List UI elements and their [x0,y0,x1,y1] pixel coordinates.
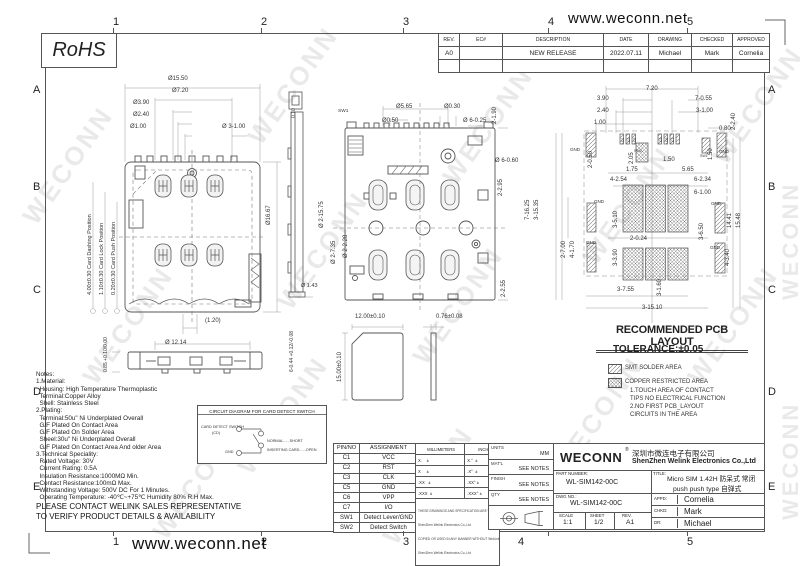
grid-row-d: D [768,386,776,398]
disclaimer-line: COPIED OR USED IN ANY MANNER WITHOUT Wei… [418,537,499,541]
frame-tick [548,28,549,33]
copper-restricted-swatch-icon [608,378,622,388]
cell [649,60,692,73]
cell: RST [360,463,418,473]
grid-row-c: C [33,284,41,296]
table-row: C7I/O [334,503,418,513]
dim-label: Ø0.50 [382,118,398,124]
finish-label: FINISH [491,476,505,481]
pcb-tolerance: TOLERANCE:±0.05 [613,344,703,355]
dr-value: Michael [677,519,712,528]
cell: VCC [360,453,418,463]
sim-card-view [338,320,458,405]
cell: C7 [334,503,360,513]
dim-label: 1.00 [594,120,606,126]
cell: C3 [334,473,360,483]
grid-row-e: E [768,481,775,493]
dwg-no-value: WL-SIM142-00C [570,500,622,507]
title-block: WECONN ® 深圳市微连电子有限公司 ShenZhen Welink Ele… [553,443,765,530]
qty-value: SEE NOTES [519,497,549,503]
dim-label: Ø5.65 [396,104,412,110]
sheet-cell: SHEET 1/2 [585,512,615,529]
scale-label: SCALE [559,513,573,518]
dim-label: Ø 2-2.28 [343,235,349,258]
smt-solder-swatch-icon [608,364,622,374]
cell: DATE [604,34,649,47]
dim-label: Ø2.40 [133,112,149,118]
frame-tick [687,28,688,33]
cell [439,60,460,73]
dim-label: Ø 6-0.25 [463,118,486,124]
note-line: Terminal:Copper Alloy [36,393,241,400]
cell: Mark [692,47,733,60]
dim-label: Ø1.00 [130,124,146,130]
dim-label: 2.05 [629,152,635,164]
qty-label: QTY [491,492,500,497]
cell: PIN/NO [334,444,360,454]
circuit-normal-label: NORMAL......SHORT [267,440,303,444]
dim-label: 0.10 [292,108,297,118]
info-column: UNITS MM MAT'L SEE NOTES FINISH SEE NOTE… [488,443,555,530]
circuit-gnd-label: GND [225,451,233,455]
dim-label: 0.20±0.30 Card Push Position [112,222,118,295]
cell: 2022.07.11 [604,47,649,60]
chkd-label: CHKD: [654,508,667,513]
rohs-label: RoHS [52,39,105,62]
dim-label: 7.20 [646,86,658,92]
appd-value: Cornelia [677,495,714,504]
card-detect-circuit: CIRCUIT DIAGRAM FOR CARD DETECT SWITCH C… [197,405,327,464]
label-gnd: GND [711,202,721,207]
table-row: C6VPP [334,493,418,503]
label-gnd: GND [570,148,580,153]
dim-label: 1.75 [626,167,638,173]
cell: APPROVED [733,34,770,47]
dr-row: DR: Michael [651,517,764,529]
note-line: Housing: High Temperature Thermoplastic [36,386,241,393]
dim-label: 3-15.35 [534,200,540,220]
dim-label: 3-5.10 [613,211,619,228]
label-gnd: GND [710,246,720,251]
part-number-cell: PART NUMBER: WL-SIM142-00C [554,470,652,494]
grid-col-5: 5 [687,536,693,548]
cell: .XXX ± [416,488,465,499]
disclaimer-line: ShenZhen Welink Electronics Co.,Ltd [418,551,499,555]
dim-label: 2-0.24 [630,236,647,242]
cell: GND [360,483,418,493]
pad-label: C5 [660,138,663,142]
copper-note: 2.NO FIRST PCB_LAYOUT [630,404,704,410]
dim-label: 12.00±0.10 [355,314,385,320]
cell [460,47,503,60]
part-number-value: WL-SIM142-00C [566,479,618,486]
grid-row-b: B [33,181,40,193]
dim-label: 4-3.40 [725,249,731,266]
dim-label: 0.85 +0.10/0.00 [104,337,109,372]
appd-label: APPD: [654,496,667,501]
title-line1: Micro SIM 1.42H 防呆式 常闭 [667,473,755,483]
matl-value: SEE NOTES [519,466,549,472]
finish-value: SEE NOTES [519,482,549,488]
title-label: TITLE: [653,471,666,476]
note-line: Operating Temperature: -40℃~+75℃ Humidit… [36,494,241,501]
pin-assignment-table: PIN/NO ASSIGNMENT C1VCC C2RST C3CLK C5GN… [333,443,418,533]
dim-label: 3-1.60 [657,279,663,296]
grid-col-4: 4 [518,536,524,548]
drawing-sheet: { "header": { "url": "www.weconn.net" },… [0,0,800,565]
cell: X. ± [416,455,465,466]
circuit-cd-label: (CD) [212,432,220,436]
label-sw1: SW1 [700,155,708,159]
dim-label: 0.80 [719,126,731,132]
copper-note: CIRCUITS IN THE AREA [630,412,697,418]
dim-label: Ø 2-7.35 [331,241,337,264]
table-row: C1VCC [334,453,418,463]
cell: Detect Lever/GND [360,513,418,523]
table-row: PIN/NO ASSIGNMENT [334,444,418,454]
frame-tick [687,531,688,536]
dim-label: 3-1.00 [696,108,713,114]
smt-solder-label: SMT SOLDER AREA [625,365,682,371]
cell: SW2 [334,523,360,533]
cell [733,60,770,73]
dim-label: 6-2.34 [694,177,711,183]
dim-label: 3-3.90 [613,249,619,266]
cell: ASSIGNMENT [360,444,418,454]
rev-label: REV. [622,513,632,518]
grid-col-1: 1 [113,536,119,548]
note-line: Contact Resistance:100mΩ Max. [36,480,241,487]
chkd-value: Mark [677,507,702,516]
connector-bottom-view [328,98,513,313]
cell: CLK [360,473,418,483]
connector-edge-view [283,90,317,310]
cell: EC# [460,34,503,47]
footer-url: www.weconn.net [132,534,267,554]
brand-logo: WECONN [560,450,622,465]
grid-col-3: 3 [403,536,409,548]
copper-note: 1.TOUCH AREA OF CONTACT [630,388,714,394]
label-gnd: GND [719,150,729,155]
circuit-inserting-label: INSERTING CARD......OPEN [267,449,317,453]
cell [460,60,503,73]
dim-label: 2-2.95 [498,179,504,196]
contact-notice: TO VERIFY PRODUCT DETAILS & AVAILABILITY [36,512,241,522]
part-number-label: PART NUMBER: [556,471,588,476]
cell: C6 [334,493,360,503]
dim-label: Ø0.30 [444,104,460,110]
sheet-value: 1/2 [594,519,603,526]
dim-label: 2-2.55 [501,280,507,297]
frame-tick [261,531,262,536]
grid-col-2: 2 [261,16,267,28]
pad-label: C7 [672,138,675,142]
dim-label: Ø 1.43 [301,284,318,290]
dim-label: 3-7.55 [617,287,634,293]
dim-label: 4.00±0.30 Card Dashing Position [88,214,94,295]
dim-label: 2-1.90 [492,107,498,124]
dim-label: Ø 3-1.00 [222,124,245,130]
frame-tick [113,531,114,536]
dim-label: Ø3.90 [133,100,149,106]
note-line: 1.Material: [36,378,241,385]
table-row [439,60,770,73]
cell: Cornelia [733,47,770,60]
cell [604,60,649,73]
frame-tick [403,531,404,536]
dim-label: (1.20) [205,318,221,324]
third-angle-projection-icon [499,510,545,527]
frame-tick [261,28,262,33]
title-line2: push push type 自弹式 [673,483,741,493]
pad-label: C6 [666,138,669,142]
cell: Detect Switch [360,523,418,533]
frame-tick [548,531,549,536]
dim-label: 14.41 [727,213,733,228]
dwg-no-cell: DWG NO.: WL-SIM142-00C [554,493,652,513]
label-sw2: SW2 [634,150,642,154]
cell: C2 [334,463,360,473]
note-line: Withstanding Voltage: 500V DC For 1 Minu… [36,487,241,494]
company-name-en: ShenZhen Welink Electronics Co.,Ltd [632,458,756,465]
label-gnd: GND [594,200,604,205]
grid-col-3: 3 [403,16,409,28]
contact-notice: PLEASE CONTACT WELINK SALES REPRESENTATI… [36,502,241,512]
rev-cell: REV. A1 [614,512,651,529]
table-row: C2RST [334,463,418,473]
dim-label: 1.50 [708,148,714,160]
cell [503,60,604,73]
dim-label: 3-15.10 [642,305,662,311]
matl-cell: MAT'L SEE NOTES [489,460,554,476]
scale-row: SCALE 1:1 SHEET 1/2 REV. A1 [554,512,652,529]
units-value: MM [540,451,549,457]
label-sw1: SW1 [338,110,348,115]
dim-label: 2-2.40 [731,113,737,130]
matl-label: MAT'L [491,461,503,466]
drawing-title-cell: TITLE: Micro SIM 1.42H 防呆式 常闭 push push … [651,470,764,494]
note-line: Insulation Resistance:1000MΩ Min. [36,473,241,480]
dim-label: 2-0.50 [588,151,594,168]
dim-label: Ø 6-0.60 [495,158,518,164]
projection-cell [489,506,554,531]
cell: DRAWING [649,34,692,47]
sheet-label: SHEET [590,513,604,518]
grid-col-4: 4 [548,16,554,28]
frame-tick [403,28,404,33]
copper-note: TIPS NO ELECTRICAL FUNCTION [630,396,725,402]
cell: SW1 [334,513,360,523]
cell: C5 [334,483,360,493]
cell: MILLIMETERS [416,444,465,455]
revision-table: REV. EC# DESCRIPTION DATE DRAWING CHECKE… [438,33,770,73]
header-url: www.weconn.net [568,10,688,27]
finish-cell: FINISH SEE NOTES [489,475,554,491]
cell: DESCRIPTION [503,34,604,47]
dim-label: 4-2.54 [610,177,627,183]
dr-label: DR: [654,520,661,525]
frame-tick [113,28,114,33]
dim-label: Ø 12.14 [165,340,186,346]
grid-row-a: A [33,84,40,96]
cell: Michael [649,47,692,60]
pad-label: C3 [634,138,637,142]
cell: REV. [439,34,460,47]
dwg-no-label: DWG NO.: [556,494,577,499]
dim-label: 3-6.50 [699,223,705,240]
dim-label: Ø7.20 [172,88,188,94]
cell: CHECKED [692,34,733,47]
pad-label: C2 [628,138,631,142]
dim-label: 1.50 [663,157,675,163]
dim-label: 0.76±0.08 [436,314,463,320]
cell: .XX ± [416,477,465,488]
dim-label: 5.65 [682,167,694,173]
registered-mark-icon: ® [625,447,629,453]
pad-label: C1 [622,138,625,142]
table-row: REV. EC# DESCRIPTION DATE DRAWING CHECKE… [439,34,770,47]
cell: VPP [360,493,418,503]
dim-label: 3.90 [597,96,609,102]
note-line: Current Rating: 0.5A [36,465,241,472]
cell: C1 [334,453,360,463]
dim-label: 6-0.44 +0.12/-0.08 [290,331,295,372]
table-row: A0 NEW RELEASE 2022.07.11 Michael Mark C… [439,47,770,60]
scale-cell: SCALE 1:1 [554,512,586,529]
dim-label: 1.10±0.30 Card Lock Position [100,223,106,295]
dim-label: 2.40 [597,108,609,114]
brand-row: WECONN ® 深圳市微连电子有限公司 ShenZhen Welink Ele… [554,444,764,471]
units-cell: UNITS MM [489,444,554,460]
dim-label: 6-1.00 [694,190,711,196]
cell: X ± [416,466,465,477]
table-row: C5GND [334,483,418,493]
cell: A0 [439,47,460,60]
rohs-badge: RoHS [41,33,117,68]
units-label: UNITS [491,445,504,450]
cell [692,60,733,73]
grid-col-1: 1 [113,16,119,28]
dim-label: 4-1.70 [570,241,576,258]
cell: NEW RELEASE [503,47,604,60]
dim-label: Ø15.50 [168,76,188,82]
cell: I/O [360,503,418,513]
dim-label: 15.00±0.10 [337,352,343,382]
dim-label: 2-7.00 [561,241,567,258]
dim-label: Ø 2-15.75 [319,201,325,228]
dim-label: 7-0.55 [695,96,712,102]
dim-label: 7-16.25 [525,200,531,220]
copper-restricted-label: COPPER RESTRICTED AREA [625,379,708,385]
table-row: SW1Detect Lever/GND [334,513,418,523]
table-row: SW2Detect Switch [334,523,418,533]
table-row: C3CLK [334,473,418,483]
circuit-switch-label: CARD DETECT SWITCH [201,426,244,430]
qty-cell: QTY SEE NOTES [489,491,554,507]
rev-value: A1 [626,519,634,526]
dim-label: 15.48 [736,213,742,228]
note-line: Notes: [36,371,241,378]
scale-value: 1:1 [563,519,572,526]
dim-label: Ø16.67 [266,205,272,225]
label-gnd: GND [586,241,596,246]
